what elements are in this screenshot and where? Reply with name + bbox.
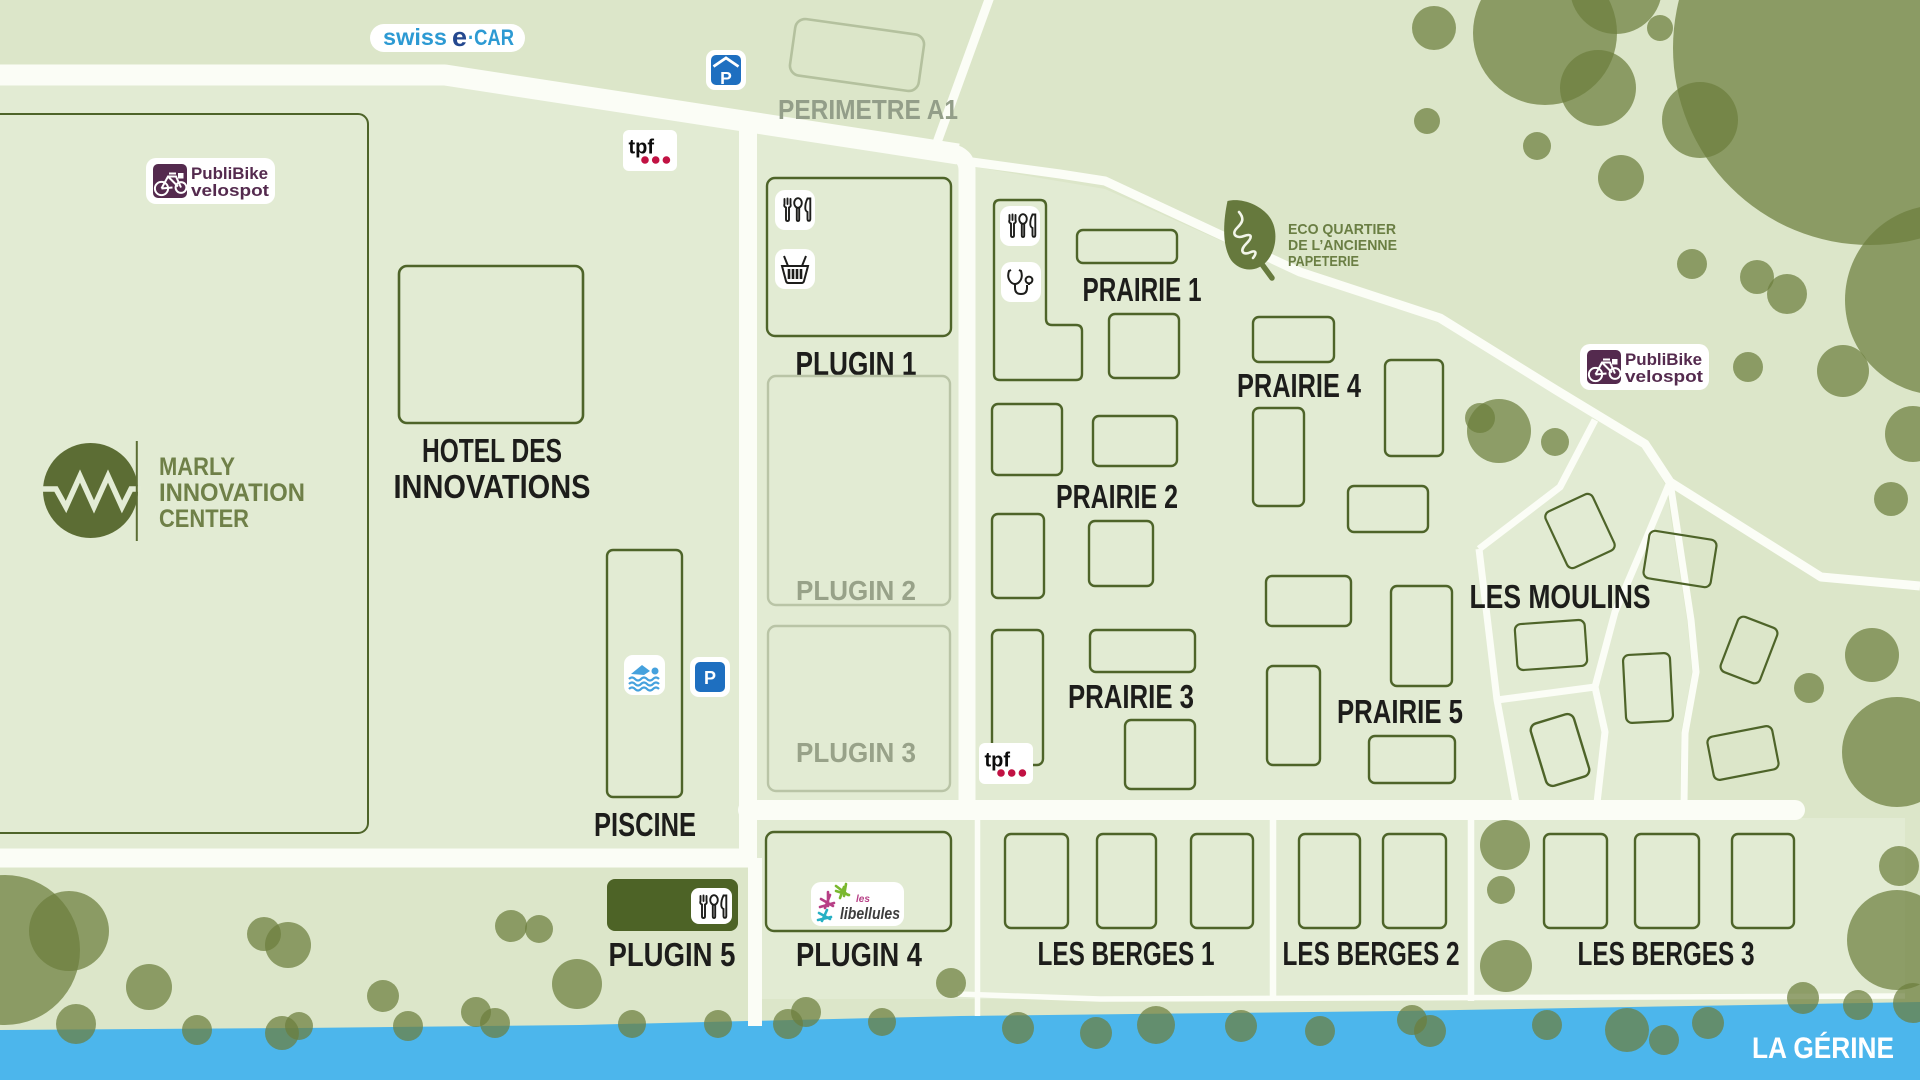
svg-text:tpf: tpf xyxy=(985,750,1011,772)
svg-text:CENTER: CENTER xyxy=(159,505,249,533)
svg-text:PRAIRIE 2: PRAIRIE 2 xyxy=(1056,478,1178,515)
svg-text:PLUGIN 4: PLUGIN 4 xyxy=(796,936,923,973)
svg-text:HOTEL DES: HOTEL DES xyxy=(422,432,562,469)
svg-text:MARLY: MARLY xyxy=(159,453,235,481)
svg-text:e: e xyxy=(452,22,467,52)
svg-text:P: P xyxy=(704,668,716,688)
svg-text:PLUGIN 3: PLUGIN 3 xyxy=(796,737,916,768)
svg-text:LA GÉRINE: LA GÉRINE xyxy=(1752,1031,1894,1065)
svg-text:libellules: libellules xyxy=(840,905,900,923)
svg-text:PERIMETRE A1: PERIMETRE A1 xyxy=(778,94,958,125)
svg-text:PRAIRIE 3: PRAIRIE 3 xyxy=(1068,678,1194,715)
svg-text:LES BERGES 2: LES BERGES 2 xyxy=(1283,935,1460,972)
svg-text:INNOVATIONS: INNOVATIONS xyxy=(394,468,591,505)
svg-text:PLUGIN 2: PLUGIN 2 xyxy=(796,575,916,606)
svg-text:·CAR: ·CAR xyxy=(468,25,514,50)
svg-text:INNOVATION: INNOVATION xyxy=(159,479,305,507)
svg-text:PLUGIN 5: PLUGIN 5 xyxy=(609,936,736,973)
svg-text:ECO QUARTIER: ECO QUARTIER xyxy=(1288,221,1396,238)
svg-text:PAPETERIE: PAPETERIE xyxy=(1288,253,1359,270)
svg-text:PRAIRIE 4: PRAIRIE 4 xyxy=(1237,367,1361,404)
svg-text:LES BERGES 1: LES BERGES 1 xyxy=(1038,935,1215,972)
svg-text:swiss: swiss xyxy=(383,24,447,50)
svg-text:PISCINE: PISCINE xyxy=(594,806,696,843)
svg-text:P: P xyxy=(720,68,732,88)
svg-text:les: les xyxy=(856,894,870,905)
svg-text:DE L’ANCIENNE: DE L’ANCIENNE xyxy=(1288,237,1397,254)
svg-text:PRAIRIE 1: PRAIRIE 1 xyxy=(1083,271,1202,308)
svg-text:tpf: tpf xyxy=(629,137,655,159)
svg-text:LES BERGES 3: LES BERGES 3 xyxy=(1578,935,1755,972)
svg-text:LES MOULINS: LES MOULINS xyxy=(1470,578,1651,615)
svg-text:PRAIRIE 5: PRAIRIE 5 xyxy=(1337,693,1463,730)
